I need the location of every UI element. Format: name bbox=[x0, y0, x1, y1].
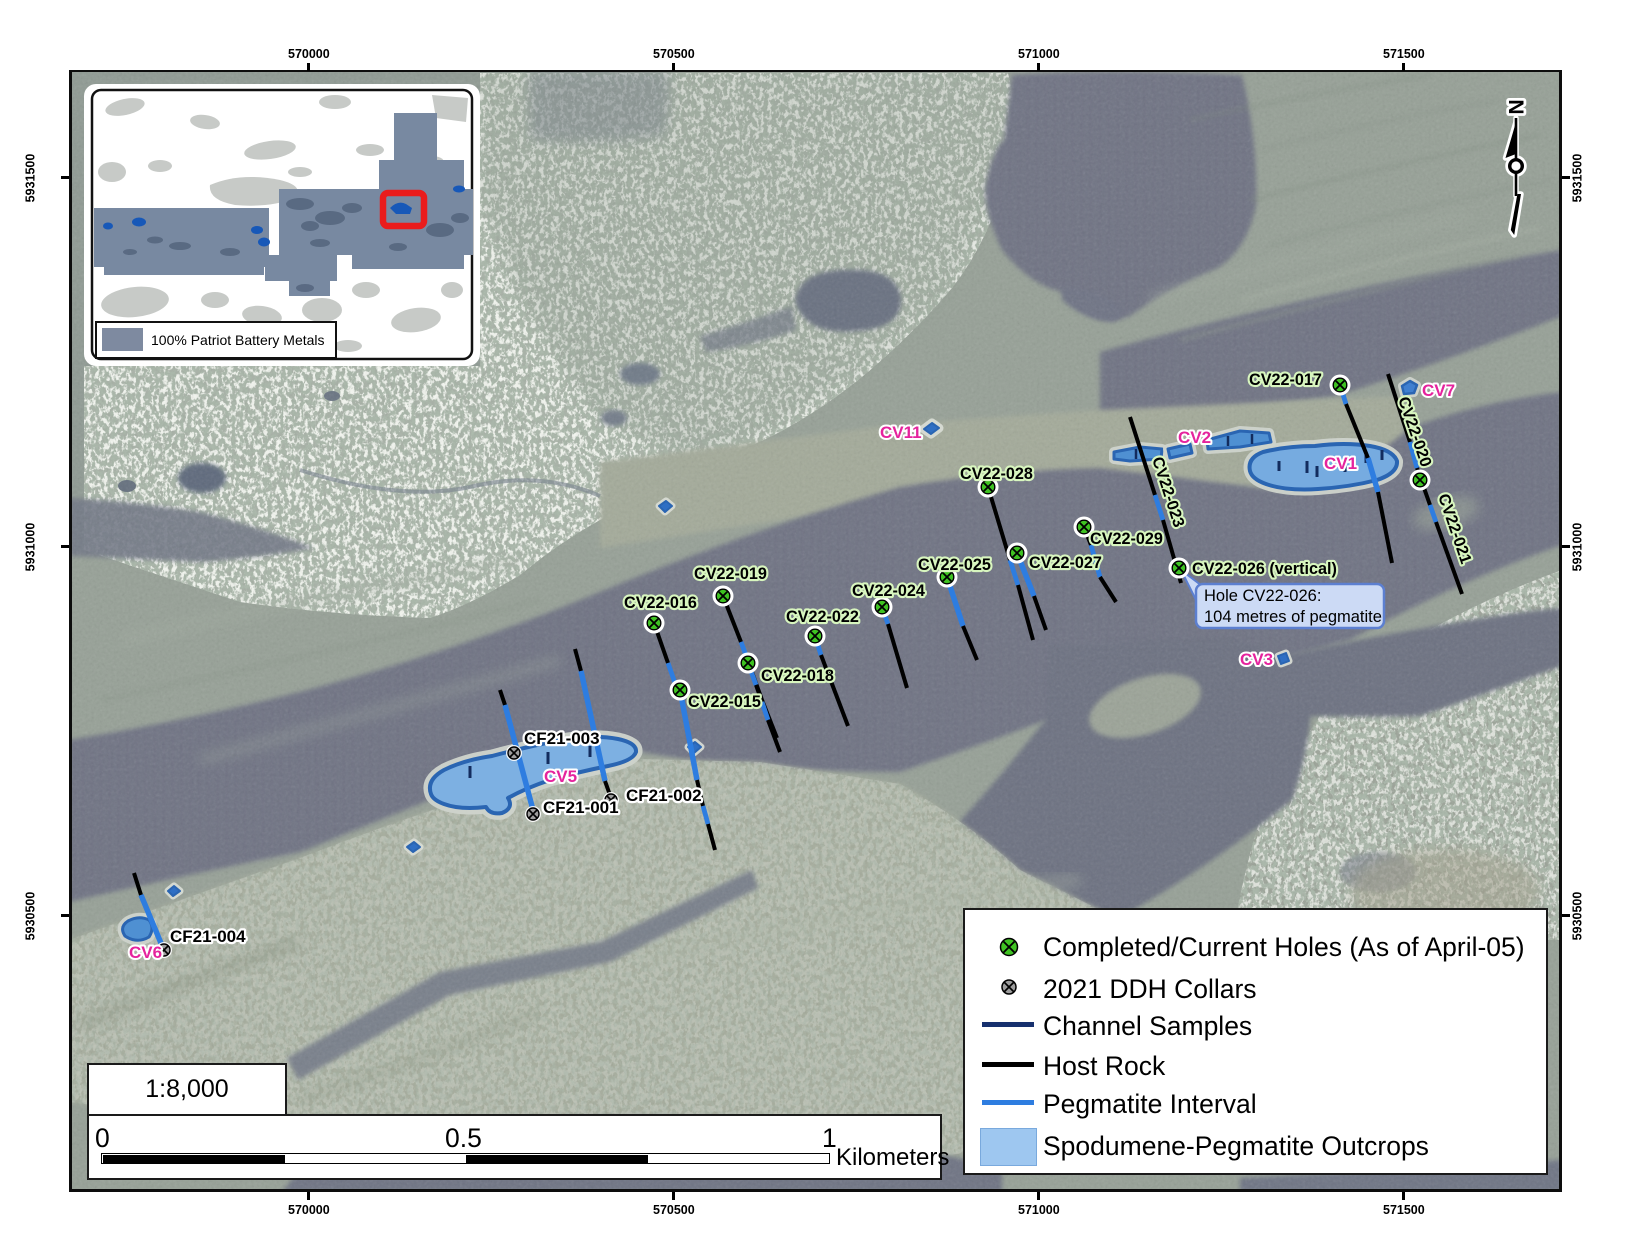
svg-text:CF21-002: CF21-002 bbox=[626, 786, 702, 805]
svg-text:CF21-003: CF21-003 bbox=[524, 729, 600, 748]
svg-text:CV11: CV11 bbox=[880, 423, 922, 442]
svg-text:CV22-029: CV22-029 bbox=[1090, 530, 1163, 548]
svg-text:CV5: CV5 bbox=[544, 767, 577, 786]
svg-text:Hole CV22-026:: Hole CV22-026: bbox=[1204, 587, 1321, 605]
svg-text:CV22-017: CV22-017 bbox=[1249, 371, 1322, 389]
svg-text:CV22-024: CV22-024 bbox=[852, 582, 925, 600]
svg-text:CV2: CV2 bbox=[1178, 428, 1211, 447]
svg-text:CV22-015: CV22-015 bbox=[688, 693, 761, 711]
svg-text:CV1: CV1 bbox=[1324, 454, 1357, 473]
svg-text:CV3: CV3 bbox=[1240, 650, 1273, 669]
svg-text:CV22-018: CV22-018 bbox=[761, 667, 834, 685]
svg-text:CV22-019: CV22-019 bbox=[694, 565, 767, 583]
svg-text:CV22-027: CV22-027 bbox=[1029, 554, 1102, 572]
svg-text:CF21-004: CF21-004 bbox=[170, 927, 246, 946]
svg-text:CV6: CV6 bbox=[129, 943, 162, 962]
svg-text:CV22-016: CV22-016 bbox=[624, 594, 697, 612]
svg-text:CV7: CV7 bbox=[1422, 381, 1455, 400]
svg-text:CF21-001: CF21-001 bbox=[543, 798, 619, 817]
svg-text:CV22-026 (vertical): CV22-026 (vertical) bbox=[1192, 560, 1337, 578]
svg-text:104 metres of pegmatite: 104 metres of pegmatite bbox=[1204, 608, 1382, 626]
svg-text:CV22-022: CV22-022 bbox=[786, 608, 859, 626]
svg-text:CV22-025: CV22-025 bbox=[918, 556, 991, 574]
svg-text:CV22-028: CV22-028 bbox=[960, 465, 1033, 483]
svg-text:100% Patriot Battery Metals: 100% Patriot Battery Metals bbox=[151, 332, 325, 348]
svg-text:N: N bbox=[1504, 99, 1527, 114]
